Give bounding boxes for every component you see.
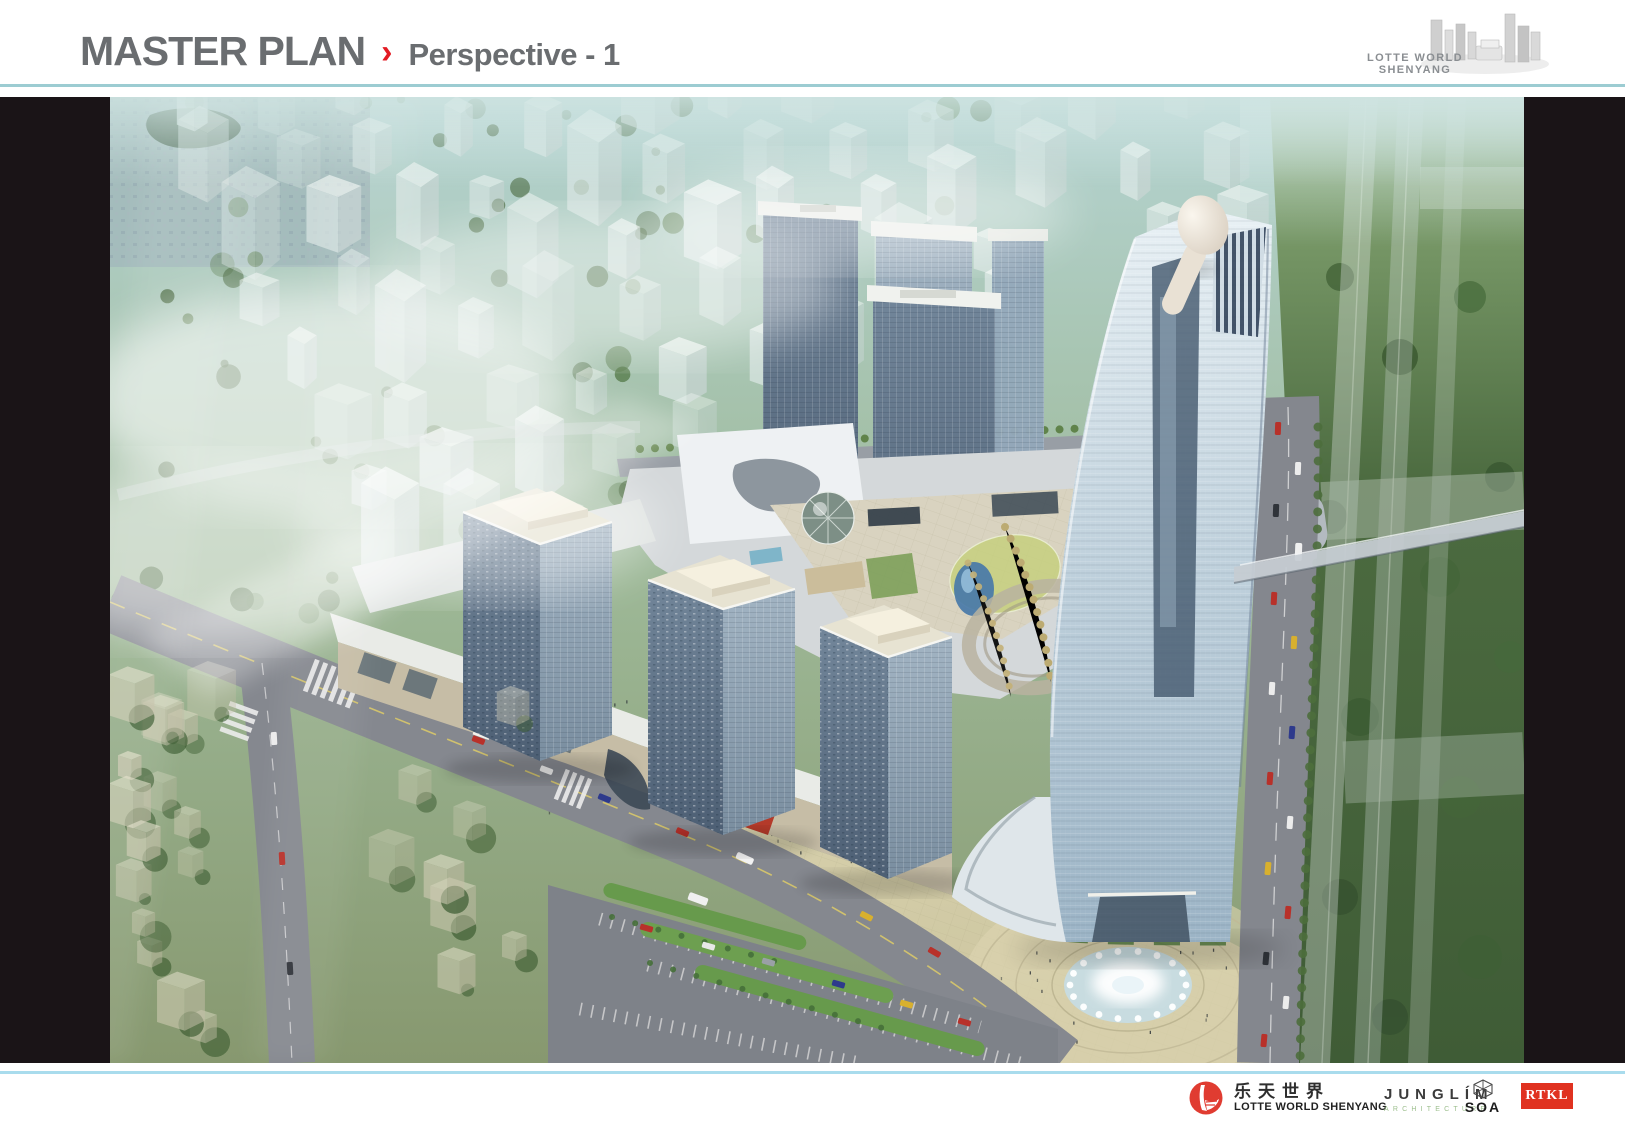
corner-logo: LOTTE WORLD SHENYANG: [1335, 2, 1555, 82]
lotte-english-name: LOTTE WORLD SHENYANG: [1234, 1101, 1387, 1113]
chevron-icon: ›: [381, 33, 392, 72]
rtkl-logo: RTKL: [1521, 1083, 1573, 1109]
soa-hexagon-icon: [1472, 1079, 1494, 1099]
header-rule: [0, 84, 1625, 87]
slide: MASTER PLAN › Perspective - 1 LO: [0, 0, 1625, 1125]
title-subtitle: Perspective - 1: [408, 37, 619, 73]
office-tower-3: [820, 605, 952, 879]
soa-name: SOA: [1461, 1099, 1505, 1115]
rtkl-name: RTKL: [1525, 1088, 1568, 1104]
lotte-logo: 乐天世界 LOTTE WORLD SHENYANG: [1188, 1080, 1387, 1116]
lotte-chinese-name: 乐天世界: [1234, 1083, 1387, 1102]
perspective-rendering: [0, 97, 1625, 1063]
east-road: [1268, 397, 1289, 1063]
lotte-icon: [1188, 1080, 1224, 1116]
page-title: MASTER PLAN › Perspective - 1: [80, 28, 620, 75]
slide-header: MASTER PLAN › Perspective - 1 LO: [0, 0, 1625, 84]
slide-footer: 乐天世界 LOTTE WORLD SHENYANG JUNGLÍM ARCHIT…: [0, 1074, 1625, 1125]
soa-logo: SOA: [1461, 1079, 1505, 1115]
corner-logo-caption: LOTTE WORLD SHENYANG: [1335, 52, 1495, 76]
perspective-panel: [0, 97, 1625, 1063]
glass-dome: [802, 492, 854, 544]
office-tower-2: [648, 555, 795, 835]
title-main: MASTER PLAN: [80, 28, 365, 75]
